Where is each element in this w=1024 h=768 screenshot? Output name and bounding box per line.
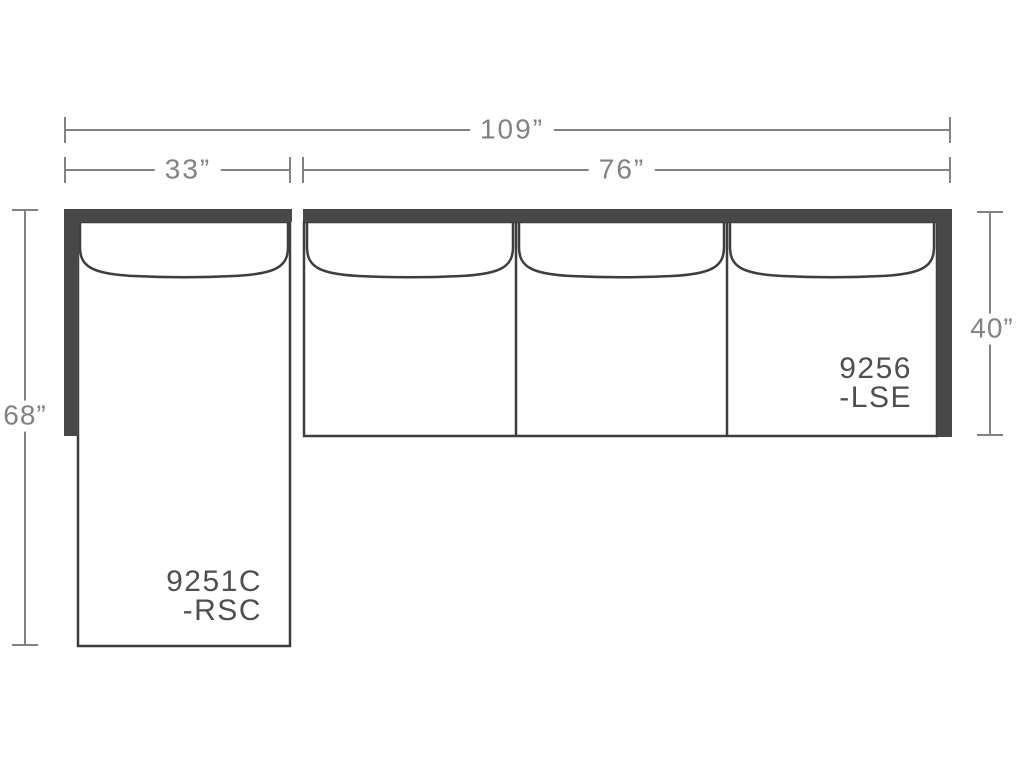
dim-chaise-width-value: 33” [155,155,221,186]
sofa-piece-code: 9256 [839,354,912,383]
chaise-back-rail [64,209,292,222]
sofa-right-arm [937,209,952,437]
chaise-piece-suffix: -RSC [166,596,262,625]
dim-sofa-width-value: 76” [589,155,655,186]
chaise-left-arm [64,209,79,436]
sofa-piece-suffix: -LSE [839,383,912,412]
dim-sofa-depth-value: 40” [965,314,1018,345]
dim-chaise-depth-value: 68” [0,401,52,432]
chaise-piece-code: 9251C [166,567,262,596]
chaise-piece-label: 9251C -RSC [166,567,262,625]
sofa-piece-label: 9256 -LSE [839,354,912,412]
dim-total-width-value: 109” [470,115,554,146]
sofa-back-rail [303,209,952,222]
sectional-dimension-diagram: 109” 33” 76” 68” 40” 9251C -RSC 9256 -LS… [0,0,1024,768]
